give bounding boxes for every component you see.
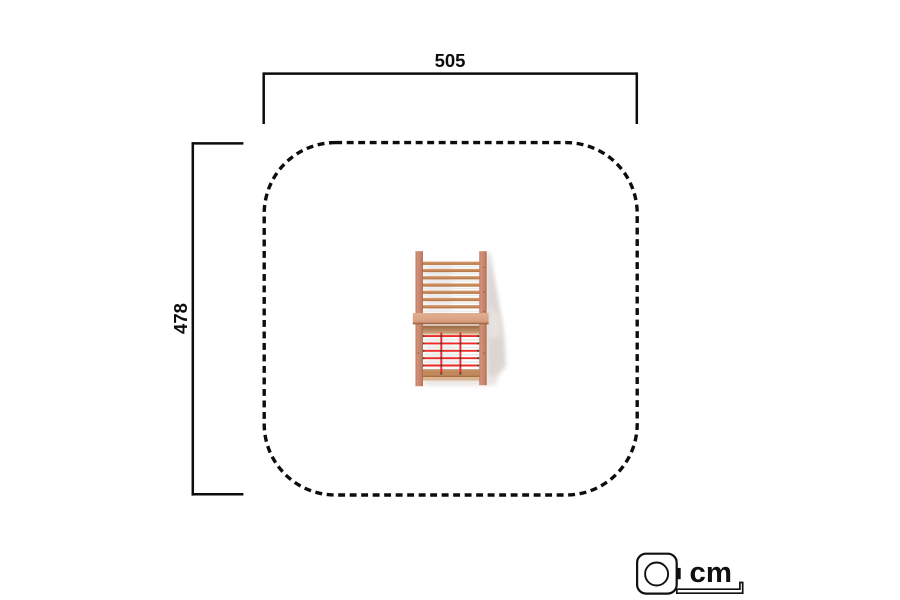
svg-text:505: 505 xyxy=(435,50,466,71)
svg-text:cm: cm xyxy=(690,557,733,589)
svg-text:478: 478 xyxy=(170,303,191,334)
